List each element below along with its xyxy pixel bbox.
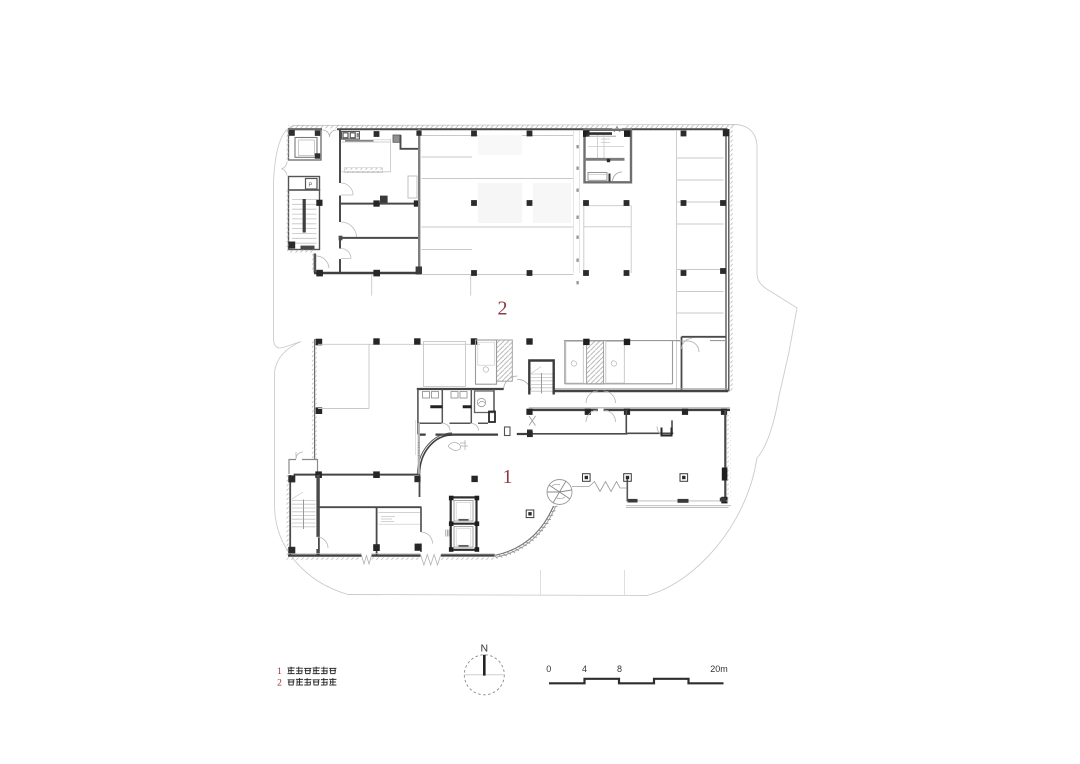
svg-text:4: 4: [582, 664, 587, 674]
svg-text:2: 2: [277, 679, 282, 689]
svg-text:P: P: [309, 183, 313, 189]
svg-text:8: 8: [617, 664, 622, 674]
svg-text:N: N: [481, 643, 489, 655]
svg-text:2: 2: [498, 298, 508, 320]
svg-text:0: 0: [546, 664, 551, 674]
svg-text:1: 1: [503, 466, 513, 488]
svg-text:1: 1: [277, 667, 282, 677]
svg-text:20m: 20m: [710, 664, 728, 674]
